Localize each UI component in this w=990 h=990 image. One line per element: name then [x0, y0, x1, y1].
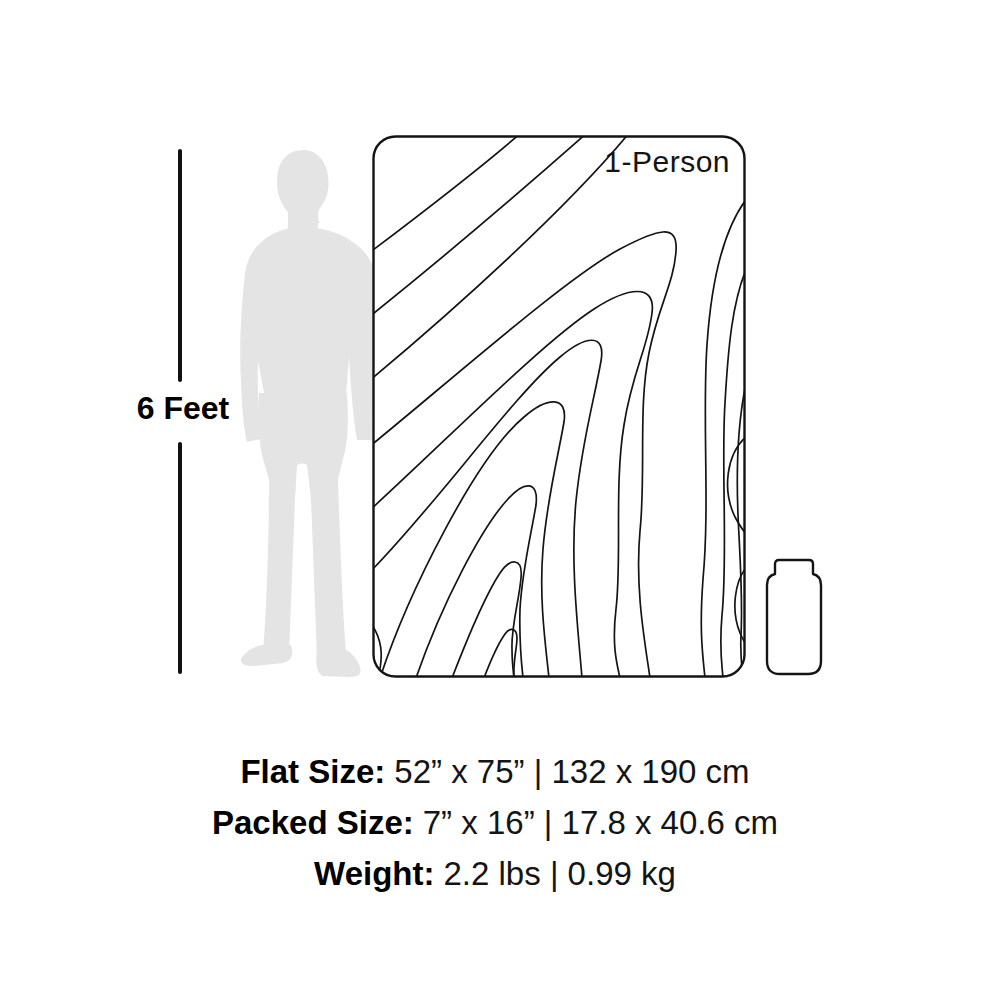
blanket-outline [374, 137, 745, 677]
height-ruler-line-bottom [178, 442, 182, 674]
silhouette-legs [259, 393, 348, 656]
spec-row-weight: Weight:2.2 lbs | 0.99 kg [0, 848, 990, 899]
person-silhouette-icon [233, 147, 375, 682]
size-comparison-diagram: 6 Feet [0, 0, 990, 990]
silhouette-right-shoe [316, 650, 360, 677]
blanket-size-badge: 1-Person [372, 145, 730, 179]
spec-label: Packed Size: [212, 804, 414, 841]
spec-row-flat-size: Flat Size:52” x 75” | 132 x 190 cm [0, 746, 990, 797]
spec-label: Weight: [314, 855, 434, 892]
silhouette-left-shoe [241, 645, 292, 666]
spec-label: Flat Size: [240, 753, 385, 790]
height-ruler-line-top [178, 149, 182, 382]
height-label: 6 Feet [128, 390, 238, 427]
spec-value: 52” x 75” | 132 x 190 cm [394, 753, 749, 790]
spec-value: 2.2 lbs | 0.99 kg [443, 855, 675, 892]
silhouette-neck [288, 203, 318, 229]
spec-list: Flat Size:52” x 75” | 132 x 190 cm Packe… [0, 746, 990, 899]
packed-sack-icon [765, 557, 823, 677]
spec-value: 7” x 16” | 17.8 x 40.6 cm [423, 804, 778, 841]
spec-row-packed-size: Packed Size:7” x 16” | 17.8 x 40.6 cm [0, 797, 990, 848]
blanket-graphic [372, 135, 746, 678]
